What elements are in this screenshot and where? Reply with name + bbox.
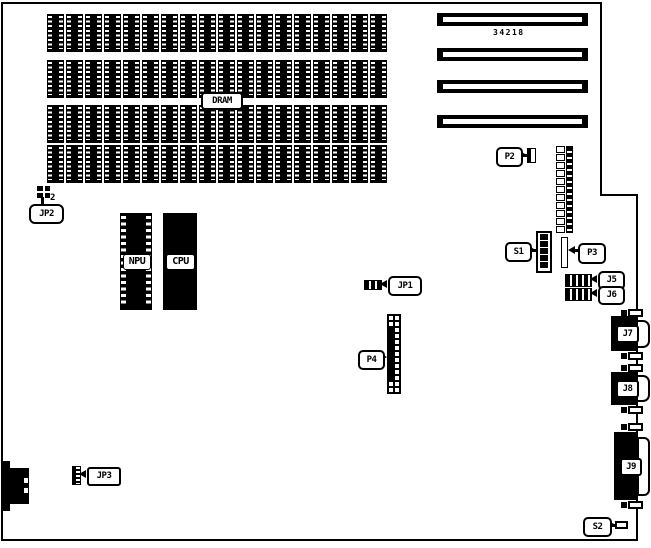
jp3-pointer — [79, 470, 86, 478]
dram-chip — [47, 14, 64, 52]
dram-row — [47, 14, 387, 52]
keyboard-connector-notch — [23, 477, 29, 484]
dram-chip — [313, 145, 330, 183]
dram-chip — [237, 145, 254, 183]
dram-chip — [104, 145, 121, 183]
dram-chip — [275, 14, 292, 52]
dram-chip — [47, 105, 64, 143]
p4-header — [387, 314, 401, 394]
dram-chip — [351, 145, 368, 183]
edge-tab — [621, 353, 627, 359]
dram-chip — [85, 145, 102, 183]
expansion-slot — [437, 13, 588, 26]
dram-chip — [370, 105, 387, 143]
expansion-slot — [437, 48, 588, 61]
j8-label: J8 — [616, 380, 639, 398]
dram-chip — [47, 145, 64, 183]
edge-tab — [628, 352, 643, 360]
dram-chip — [256, 14, 273, 52]
dram-chip — [85, 105, 102, 143]
dram-label: DRAM — [201, 92, 243, 110]
edge-tab — [621, 407, 627, 413]
dram-chip — [351, 14, 368, 52]
jp2-label: JP2 — [29, 204, 64, 224]
dram-chip — [294, 105, 311, 143]
pwr-cell — [556, 154, 565, 161]
s2-connector — [615, 521, 628, 529]
keyboard-connector-body — [9, 468, 29, 504]
dram-chip — [85, 14, 102, 52]
dram-chip — [256, 105, 273, 143]
j6-header — [565, 288, 592, 301]
s1-label: S1 — [505, 242, 532, 262]
dram-chip — [275, 105, 292, 143]
dram-chip — [104, 14, 121, 52]
dram-chip — [370, 60, 387, 98]
dram-chip — [85, 60, 102, 98]
edge-tab — [621, 502, 627, 508]
dram-chip — [123, 105, 140, 143]
dram-chip — [332, 105, 349, 143]
p3-pointer — [568, 246, 575, 254]
pwr-cell — [556, 226, 565, 233]
dram-chip — [275, 145, 292, 183]
edge-tab — [621, 424, 627, 430]
dip-block — [540, 255, 548, 261]
p4-label: P4 — [358, 350, 385, 370]
s1-dip-switch — [536, 231, 552, 273]
j7-label: J7 — [616, 325, 639, 343]
j9-label: J9 — [620, 458, 642, 476]
dip-block — [540, 248, 548, 254]
j6-pointer — [590, 289, 597, 297]
dram-chip — [218, 14, 235, 52]
dip-block — [540, 241, 548, 247]
dram-chip — [66, 105, 83, 143]
power-header — [556, 146, 575, 235]
dram-chip — [294, 14, 311, 52]
dram-chip — [237, 14, 254, 52]
dram-chip — [180, 14, 197, 52]
dram-chip — [66, 14, 83, 52]
p3-connector — [561, 237, 568, 268]
dram-chip — [218, 105, 235, 143]
pwr-cell — [556, 178, 565, 185]
dram-chip — [142, 14, 159, 52]
dram-chip — [104, 60, 121, 98]
jp1-pointer — [380, 280, 387, 288]
dram-chip — [66, 145, 83, 183]
dram-chip — [199, 14, 216, 52]
pwr-cell — [556, 162, 565, 169]
keyboard-connector-notch — [23, 487, 29, 494]
dram-chip — [104, 105, 121, 143]
jp3-label: JP3 — [87, 467, 121, 486]
motherboard-diagram: DRAM 34218 NPU CPU 2 JP2 JP1 P4 P2 S1 P3 — [0, 0, 651, 548]
pwr-cell — [556, 146, 565, 153]
dram-chip — [123, 14, 140, 52]
dram-chip — [161, 145, 178, 183]
dram-chip — [313, 105, 330, 143]
p3-label: P3 — [578, 243, 606, 264]
dram-chip — [180, 105, 197, 143]
pwr-cell — [556, 194, 565, 201]
power-header-strip — [566, 146, 573, 233]
edge-tab — [628, 423, 643, 431]
dram-chip — [66, 60, 83, 98]
p2-label: P2 — [496, 147, 523, 167]
dram-row — [47, 145, 387, 183]
expansion-slot — [437, 80, 588, 93]
power-header-pins — [556, 146, 565, 235]
dram-chip — [332, 14, 349, 52]
j5-pointer — [590, 275, 597, 283]
expansion-slot — [437, 115, 588, 128]
edge-tab — [628, 501, 643, 509]
dram-chip — [332, 145, 349, 183]
dram-chip — [370, 145, 387, 183]
dram-chip — [180, 145, 197, 183]
dram-chip — [47, 60, 64, 98]
j5-header — [565, 274, 592, 287]
pwr-cell — [556, 202, 565, 209]
dram-chip — [256, 145, 273, 183]
dram-chip — [180, 60, 197, 98]
dram-chip — [294, 145, 311, 183]
dip-block — [540, 262, 548, 268]
dram-chip — [142, 60, 159, 98]
p4-row — [388, 387, 400, 393]
npu-label: NPU — [123, 254, 151, 270]
cpu-label: CPU — [166, 254, 195, 270]
edge-tab — [628, 364, 643, 372]
dram-row — [47, 105, 387, 143]
pwr-cell — [556, 210, 565, 217]
dram-chip — [161, 14, 178, 52]
dram-chip — [161, 60, 178, 98]
dram-chip — [256, 60, 273, 98]
j6-label: J6 — [598, 286, 625, 305]
dram-chip — [313, 14, 330, 52]
part-number-text: 34218 — [493, 28, 525, 37]
jp2-pin2-text: 2 — [50, 193, 55, 203]
dram-chip — [294, 60, 311, 98]
dram-chip — [123, 60, 140, 98]
edge-tab — [628, 406, 643, 414]
dram-chip — [123, 145, 140, 183]
dram-chip — [351, 105, 368, 143]
dram-chip — [332, 60, 349, 98]
dram-chip — [275, 60, 292, 98]
dram-chip — [237, 105, 254, 143]
dram-chip — [199, 105, 216, 143]
dram-chip — [370, 14, 387, 52]
dram-chip — [161, 105, 178, 143]
dram-chip — [199, 145, 216, 183]
dram-chip — [142, 105, 159, 143]
pwr-cell — [556, 170, 565, 177]
dram-chip — [351, 60, 368, 98]
dram-chip — [313, 60, 330, 98]
jp1-label: JP1 — [388, 276, 422, 296]
dram-chip — [218, 145, 235, 183]
s2-label: S2 — [583, 517, 612, 537]
dram-chip — [142, 145, 159, 183]
edge-tab — [621, 365, 627, 371]
pwr-cell — [556, 186, 565, 193]
p2-connector — [527, 148, 536, 163]
dip-block — [540, 234, 548, 240]
pwr-cell — [556, 218, 565, 225]
